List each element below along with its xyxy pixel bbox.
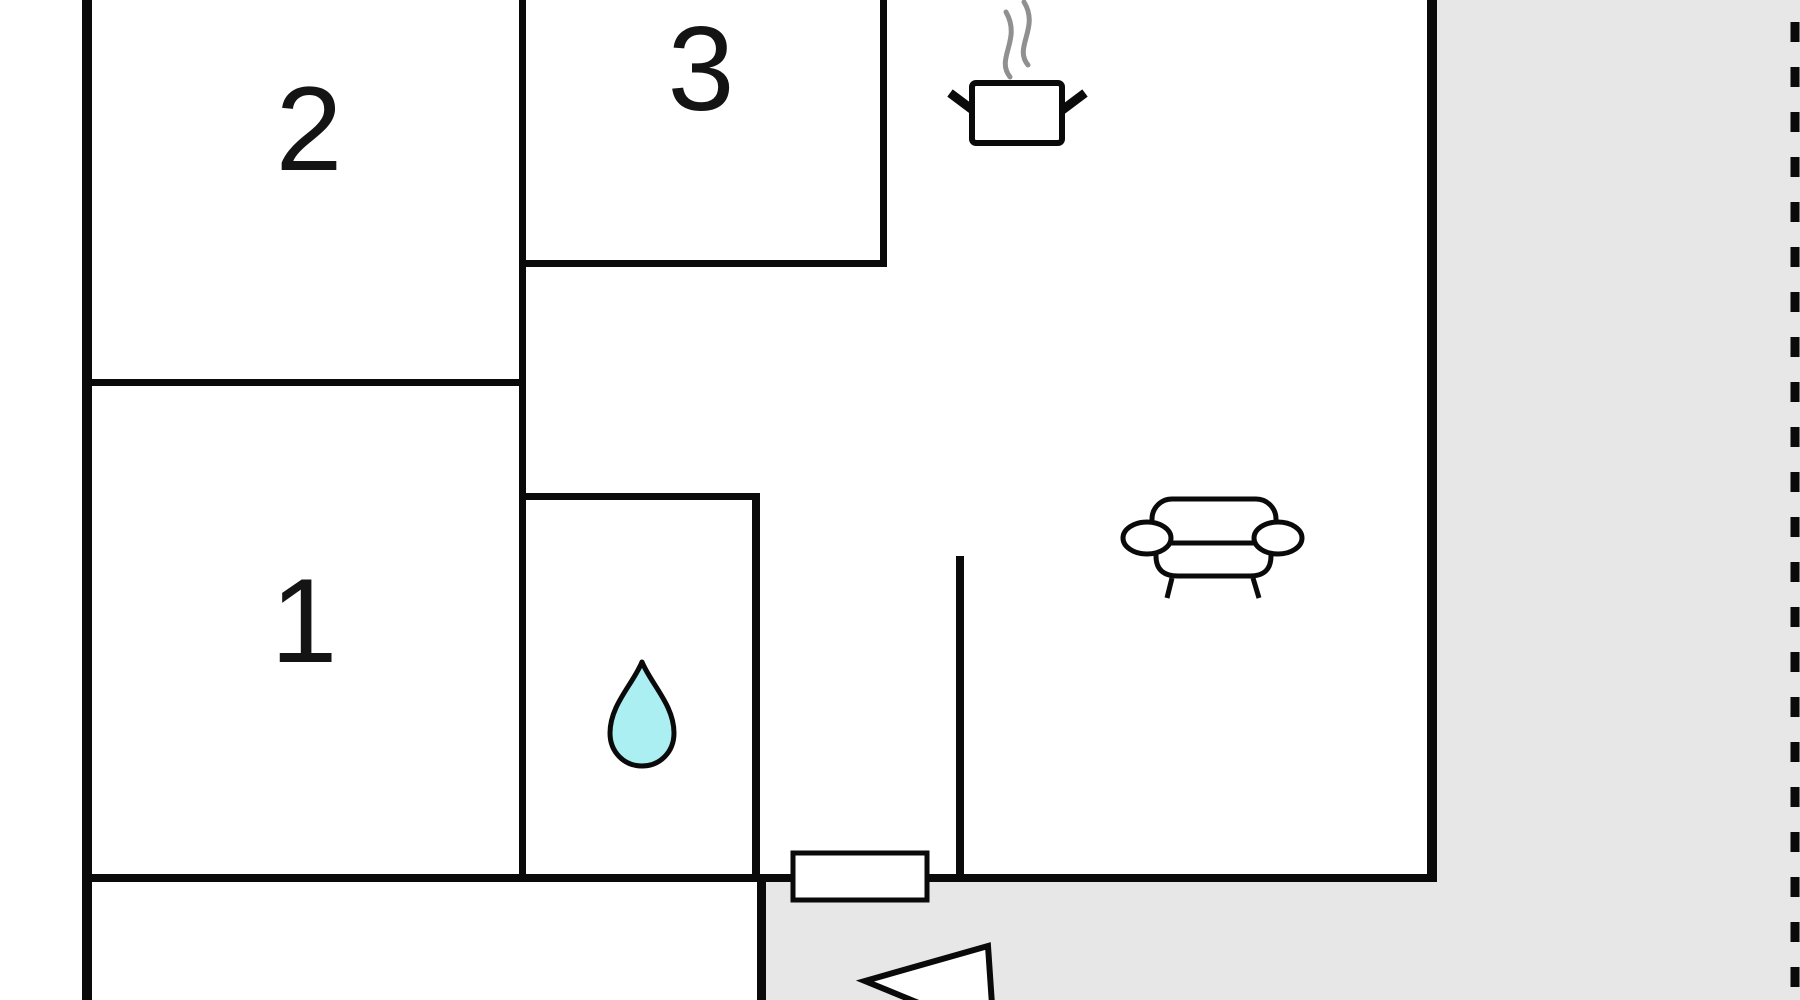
wall-center-vertical xyxy=(519,0,526,882)
pot-body xyxy=(972,83,1062,143)
sofa-armrest-left xyxy=(1123,522,1171,554)
wall-room3-right xyxy=(880,0,887,267)
sofa-armrest-right xyxy=(1254,522,1302,554)
sofa-leg-left xyxy=(1167,578,1172,598)
sofa-leg-right xyxy=(1253,578,1259,598)
wall-outer-right xyxy=(1427,0,1437,882)
cooking-pot-icon xyxy=(950,2,1085,143)
room-label-1: 1 xyxy=(271,554,338,688)
steam-line-right xyxy=(1023,2,1029,65)
sofa-icon xyxy=(1123,499,1302,598)
wall-below-entrance xyxy=(757,874,766,1000)
entrance-door xyxy=(793,853,927,900)
wall-room2-room1-divider xyxy=(92,379,519,386)
steam-line-left xyxy=(1005,12,1011,77)
wall-hall-stub xyxy=(956,556,964,874)
water-drop-icon xyxy=(610,662,674,766)
wall-room3-bottom xyxy=(519,260,887,267)
wall-bathroom-top xyxy=(519,493,760,500)
wall-bathroom-right xyxy=(752,493,760,874)
floor-plan-svg: 2 3 1 xyxy=(0,0,1800,1000)
outdoor-area-right xyxy=(1437,0,1800,1000)
floor-plan-canvas: 2 3 1 xyxy=(0,0,1800,1000)
room-label-3: 3 xyxy=(668,2,735,136)
wall-outer-left xyxy=(82,0,92,1000)
room-label-2: 2 xyxy=(276,62,343,196)
sofa-seat xyxy=(1156,543,1271,576)
